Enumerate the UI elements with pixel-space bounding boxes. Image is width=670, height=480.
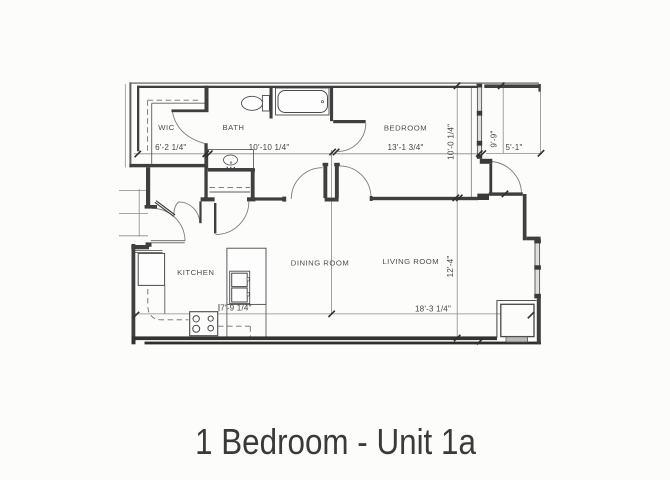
svg-text:7'-9 1/4": 7'-9 1/4": [220, 304, 251, 313]
svg-text:KITCHEN: KITCHEN: [177, 268, 214, 277]
svg-text:WIC: WIC: [158, 123, 174, 132]
svg-text:1 Bedroom - Unit 1a: 1 Bedroom - Unit 1a: [195, 422, 476, 463]
svg-text:18'-3 1/4": 18'-3 1/4": [415, 304, 451, 313]
svg-text:LIVING ROOM: LIVING ROOM: [382, 257, 439, 266]
svg-text:BEDROOM: BEDROOM: [384, 124, 427, 133]
svg-text:9'-9": 9'-9": [490, 130, 499, 147]
svg-text:10'-0 1/4": 10'-0 1/4": [447, 124, 456, 160]
svg-text:BATH: BATH: [223, 123, 245, 132]
svg-text:12'-4": 12'-4": [446, 256, 455, 278]
svg-text:6'-2 1/4": 6'-2 1/4": [155, 143, 186, 152]
svg-text:5'-1": 5'-1": [505, 143, 522, 152]
svg-text:10'-10 1/4": 10'-10 1/4": [249, 143, 290, 152]
svg-text:DINING ROOM: DINING ROOM: [291, 258, 349, 267]
svg-text:13'-1 3/4": 13'-1 3/4": [387, 143, 423, 152]
